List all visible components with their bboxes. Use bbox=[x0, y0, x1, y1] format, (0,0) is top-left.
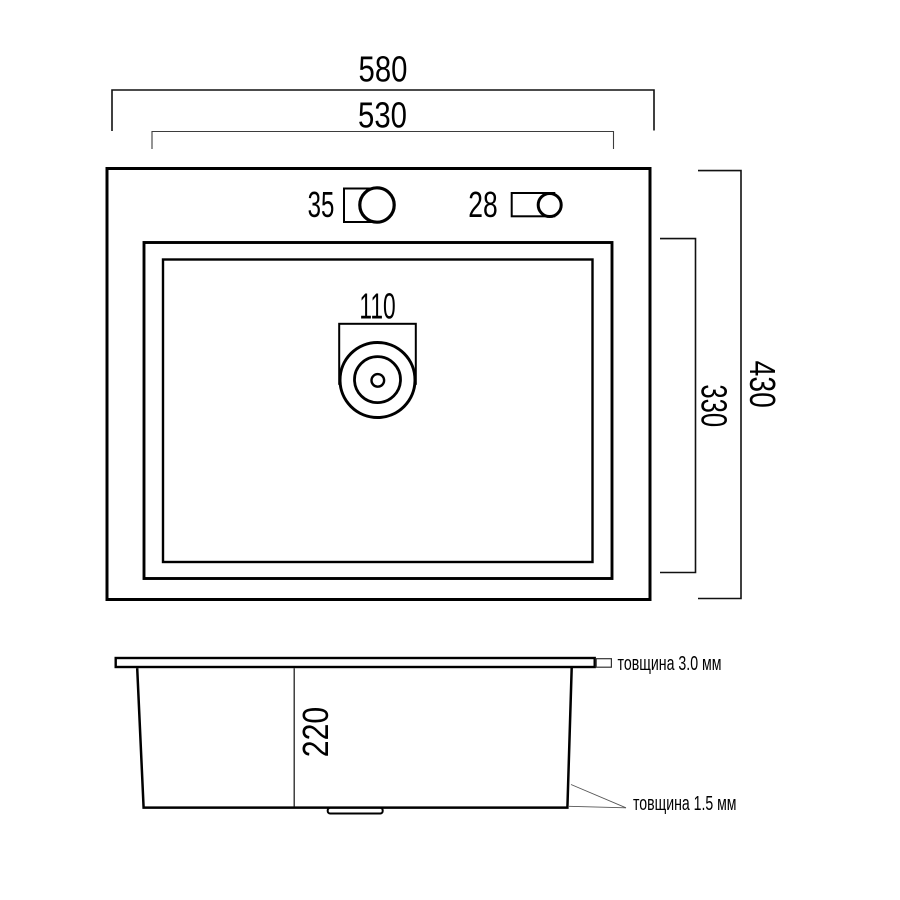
svg-text:110: 110 bbox=[359, 286, 395, 327]
svg-text:220: 220 bbox=[295, 707, 336, 757]
svg-text:28: 28 bbox=[468, 184, 497, 225]
svg-text:580: 580 bbox=[359, 49, 408, 90]
svg-text:35: 35 bbox=[308, 184, 335, 225]
svg-text:товщина 3.0 мм: товщина 3.0 мм bbox=[618, 652, 722, 675]
svg-text:330: 330 bbox=[694, 384, 735, 427]
svg-text:530: 530 bbox=[358, 95, 407, 136]
svg-text:430: 430 bbox=[742, 361, 783, 408]
svg-text:товщина 1.5 мм: товщина 1.5 мм bbox=[633, 792, 737, 815]
